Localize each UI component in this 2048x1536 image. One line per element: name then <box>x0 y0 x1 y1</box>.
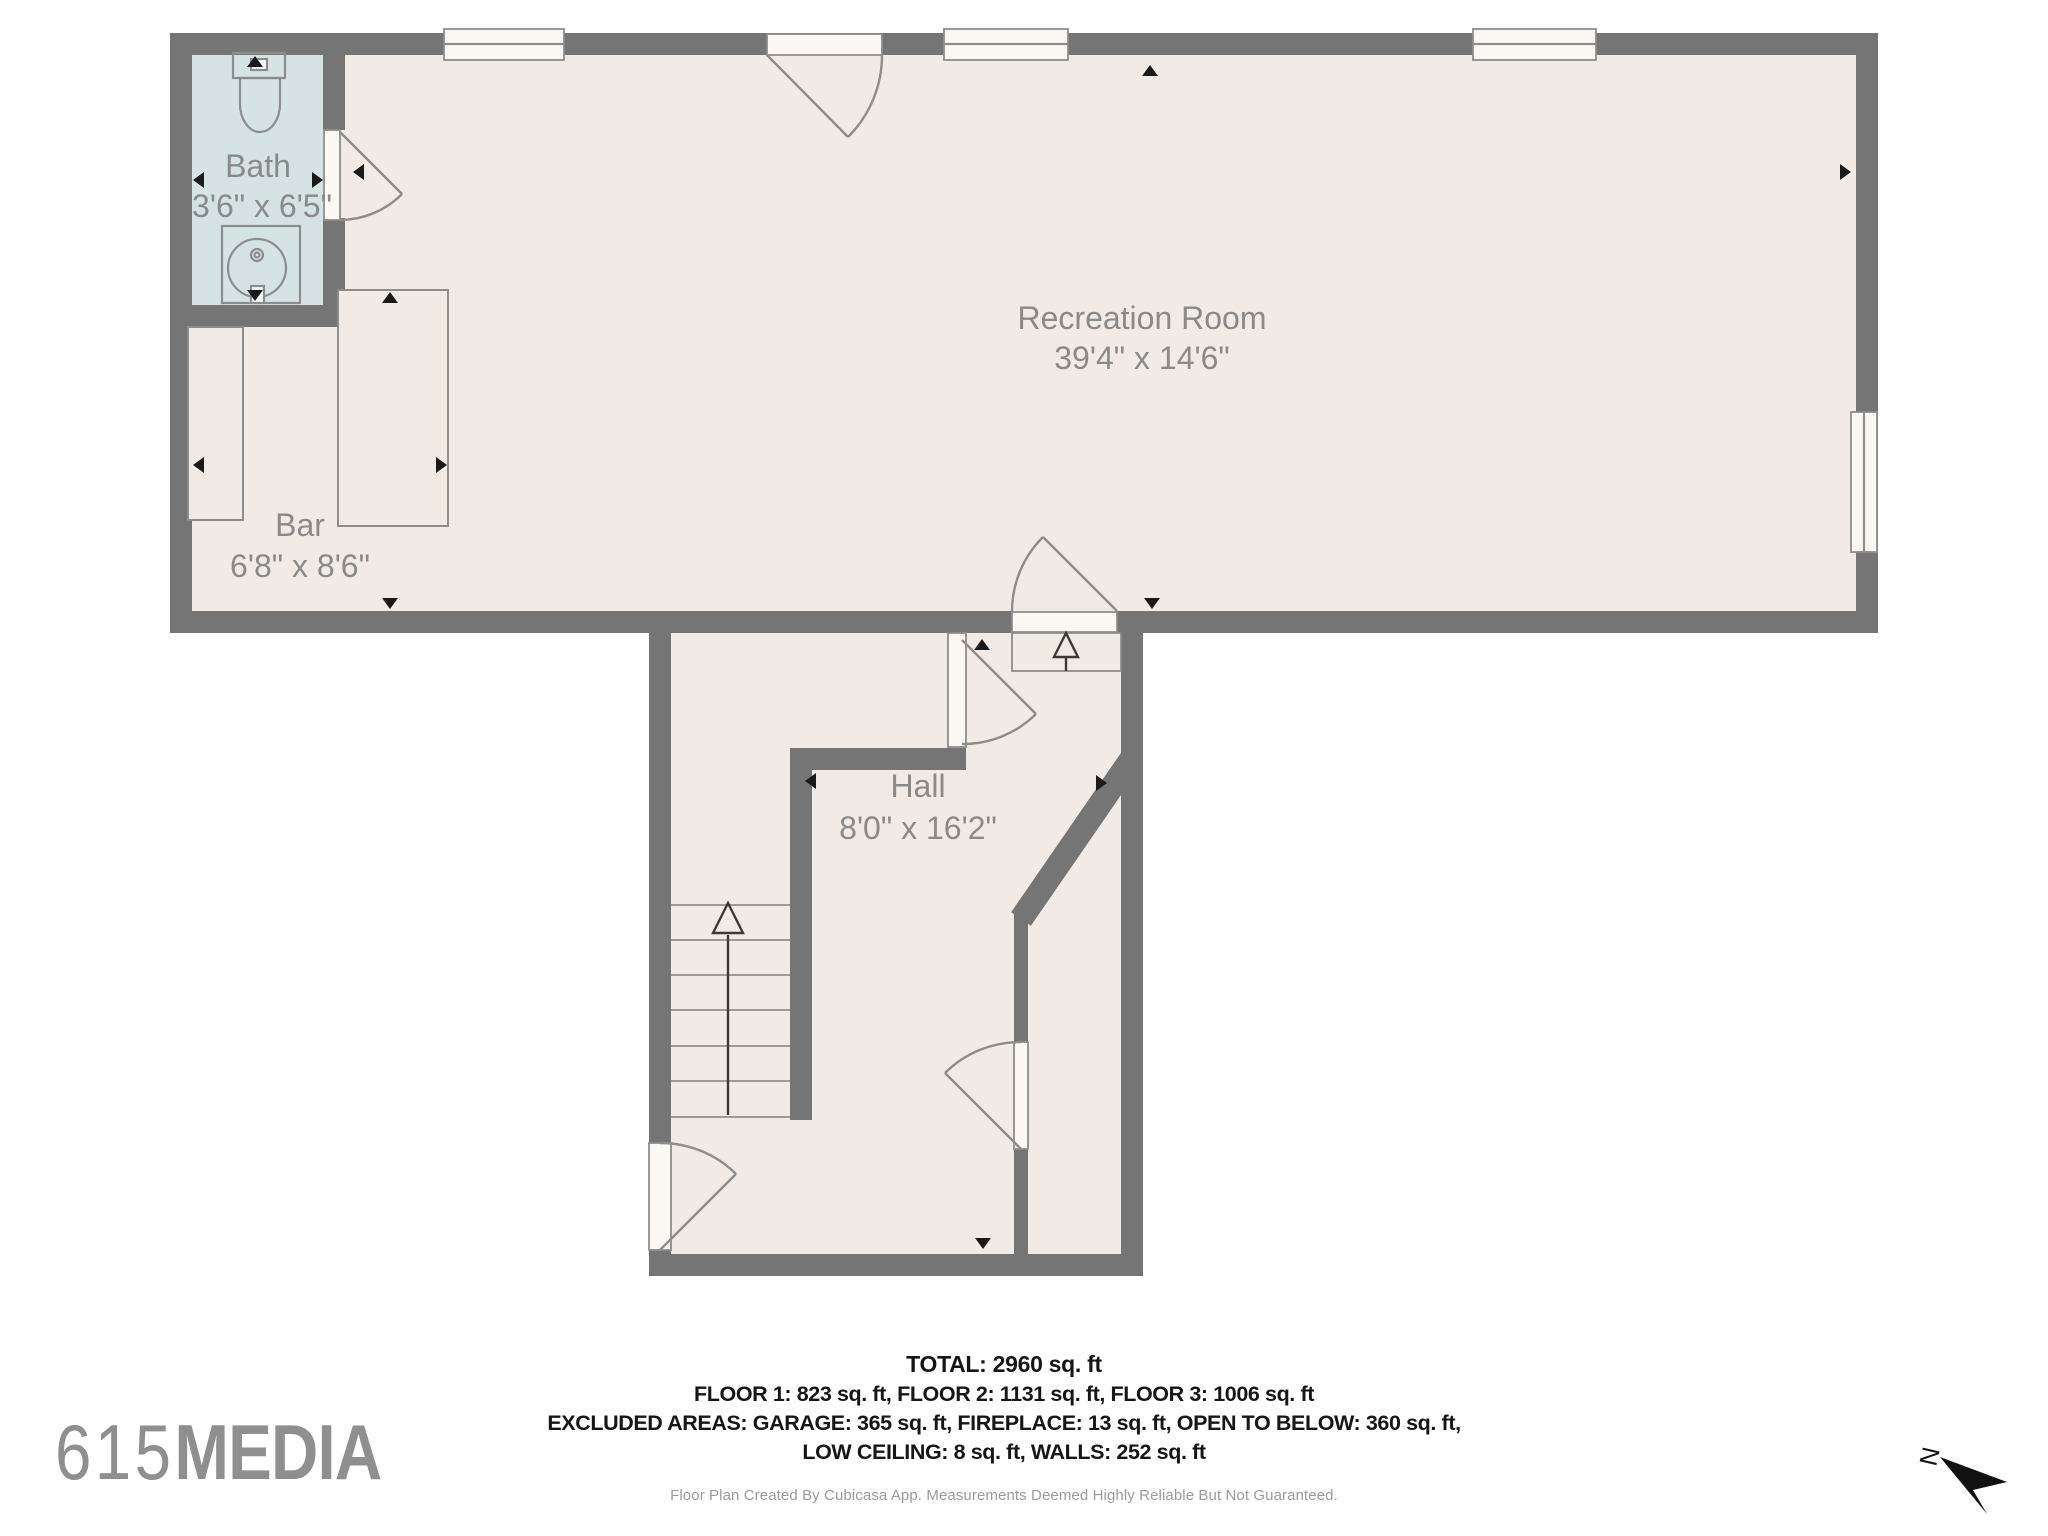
north-label: N <box>1913 1444 1944 1468</box>
logo: 615MEDIA <box>55 1412 381 1492</box>
bar-dims: 6'8" x 8'6" <box>230 548 370 584</box>
hall-landing <box>1012 633 1121 671</box>
hall-stub-wall-lower <box>1014 1149 1028 1254</box>
floor-areas-text: FLOOR 1: 823 sq. ft, FLOOR 2: 1131 sq. f… <box>0 1380 2008 1409</box>
hall-dims: 8'0" x 16'2" <box>839 810 997 846</box>
bar-counter-left <box>188 327 243 520</box>
window <box>1851 412 1877 552</box>
hall-wall-right <box>1121 633 1143 1276</box>
north-arrow-pointer <box>1940 1457 2007 1514</box>
logo-number: 615 <box>55 1408 174 1496</box>
wall-bottom-right-segment <box>1117 611 1878 633</box>
bath-wall-bottom <box>170 305 345 327</box>
recreation-label: Recreation Room <box>1018 300 1267 336</box>
hall-floor <box>671 633 1121 1254</box>
hall-interior-wall-horizontal <box>790 748 966 770</box>
logo-word: MEDIA <box>174 1408 381 1496</box>
hall-interior-wall-vertical <box>790 770 812 1120</box>
bar-label: Bar <box>275 507 325 543</box>
bath-dims: 3'6" x 6'5" <box>192 188 332 224</box>
wall-bottom-left-segment <box>170 611 1012 633</box>
total-area-text: TOTAL: 2960 sq. ft <box>0 1348 2008 1380</box>
bath-wall-right-upper <box>323 55 345 130</box>
window <box>1473 29 1596 60</box>
hall-stub-wall-upper <box>1014 913 1028 1042</box>
hall-wall-bottom <box>649 1254 1143 1276</box>
recreation-dims: 39'4" x 14'6" <box>1054 340 1230 376</box>
window <box>944 29 1068 60</box>
floor-plan-page: Bath 3'6" x 6'5" Recreation Room 39'4" x… <box>0 0 2048 1536</box>
hall-label: Hall <box>890 768 945 804</box>
north-arrow-icon: N <box>1900 1430 2030 1530</box>
bath-label: Bath <box>225 148 291 184</box>
window <box>444 29 564 60</box>
bar-counter-right <box>338 290 448 526</box>
floor-plan-svg: Bath 3'6" x 6'5" Recreation Room 39'4" x… <box>0 0 2048 1536</box>
